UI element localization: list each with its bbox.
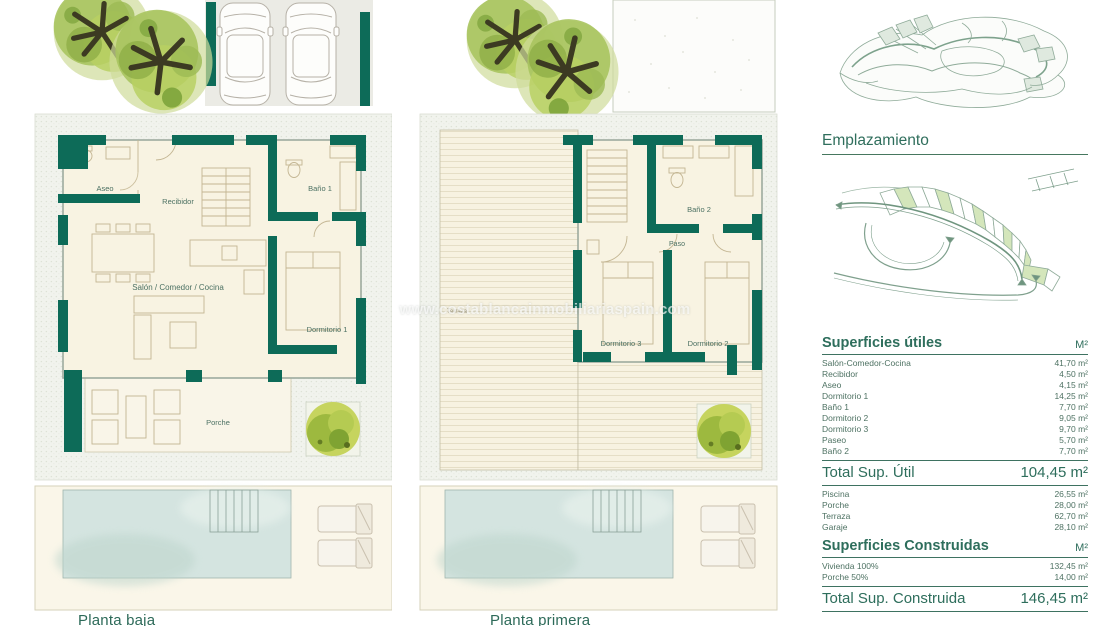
room-label-dormitorio3: Dormitorio 3 bbox=[601, 339, 642, 348]
garage bbox=[205, 0, 373, 106]
row-value: 14,00 m² bbox=[1054, 572, 1088, 583]
table-row: Baño 17,70 m² bbox=[822, 402, 1088, 413]
row-value: 9,05 m² bbox=[1059, 413, 1088, 424]
sun-lounger bbox=[701, 504, 755, 534]
gravel-patio bbox=[613, 0, 775, 112]
total-value: 104,45 m² bbox=[1020, 464, 1088, 481]
title-rule bbox=[822, 154, 1088, 155]
row-value: 9,70 m² bbox=[1059, 424, 1088, 435]
table-row: Dormitorio 39,70 m² bbox=[822, 424, 1088, 435]
total-label: Total Sup. Construida bbox=[822, 590, 965, 607]
row-label: Porche 50% bbox=[822, 572, 868, 583]
row-value: 28,10 m² bbox=[1054, 522, 1088, 533]
plan1-label: Planta baja bbox=[78, 612, 155, 626]
row-label: Baño 2 bbox=[822, 446, 849, 457]
bush-illustration bbox=[306, 402, 360, 456]
floor-plan-ground: Aseo Recibidor Baño 1 Salón / Comedor / … bbox=[30, 0, 392, 612]
row-value: 5,70 m² bbox=[1059, 435, 1088, 446]
row-label: Terraza bbox=[822, 511, 850, 522]
table-row: Dormitorio 114,25 m² bbox=[822, 391, 1088, 402]
bush-illustration bbox=[697, 404, 751, 458]
superficies-utiles-rows: Salón-Comedor-Cocina41,70 m² Recibidor4,… bbox=[822, 355, 1088, 460]
room-label-paso: Paso bbox=[669, 241, 685, 248]
sun-lounger bbox=[318, 538, 372, 568]
table-row: Baño 27,70 m² bbox=[822, 446, 1088, 457]
total-construida-row: Total Sup. Construida 146,45 m² bbox=[822, 586, 1088, 612]
row-label: Dormitorio 3 bbox=[822, 424, 868, 435]
row-value: 132,45 m² bbox=[1050, 561, 1088, 572]
section-title: Superficies útiles bbox=[822, 335, 942, 351]
row-value: 14,25 m² bbox=[1054, 391, 1088, 402]
row-value: 4,15 m² bbox=[1059, 380, 1088, 391]
table-row: Dormitorio 29,05 m² bbox=[822, 413, 1088, 424]
table-row: Salón-Comedor-Cocina41,70 m² bbox=[822, 358, 1088, 369]
table-row: Porche28,00 m² bbox=[822, 500, 1088, 511]
row-label: Piscina bbox=[822, 489, 849, 500]
terrace-deck bbox=[440, 130, 578, 470]
table-row: Piscina26,55 m² bbox=[822, 489, 1088, 500]
pool-area bbox=[420, 486, 777, 610]
row-value: 62,70 m² bbox=[1054, 511, 1088, 522]
row-label: Salón-Comedor-Cocina bbox=[822, 358, 911, 369]
row-label: Aseo bbox=[822, 380, 841, 391]
row-label: Porche bbox=[822, 500, 849, 511]
row-value: 4,50 m² bbox=[1059, 369, 1088, 380]
ground-floor-column: Aseo Recibidor Baño 1 Salón / Comedor / … bbox=[30, 0, 392, 626]
row-label: Vivienda 100% bbox=[822, 561, 879, 572]
room-label-bano1: Baño 1 bbox=[308, 184, 332, 193]
section-title: Superficies Construidas bbox=[822, 538, 989, 554]
room-label-porche: Porche bbox=[206, 418, 230, 427]
exterior-rows: Piscina26,55 m² Porche28,00 m² Terraza62… bbox=[822, 486, 1088, 536]
room-label-salon: Salón / Comedor / Cocina bbox=[132, 283, 224, 292]
row-label: Dormitorio 1 bbox=[822, 391, 868, 402]
superficies-utiles-header: Superficies útiles M² bbox=[822, 335, 1088, 355]
room-label-dormitorio2: Dormitorio 2 bbox=[688, 339, 729, 348]
table-row: Paseo5,70 m² bbox=[822, 435, 1088, 446]
watermark: www.costablancainmobiliariaspain.com bbox=[380, 301, 710, 318]
superficies-construidas-header: Superficies Construidas M² bbox=[822, 538, 1088, 558]
row-label: Paseo bbox=[822, 435, 846, 446]
row-label: Recibidor bbox=[822, 369, 858, 380]
row-value: 41,70 m² bbox=[1054, 358, 1088, 369]
room-label-aseo: Aseo bbox=[96, 184, 113, 193]
car-illustration bbox=[217, 3, 273, 105]
room-label-recibidor: Recibidor bbox=[162, 197, 194, 206]
total-label: Total Sup. Útil bbox=[822, 464, 915, 481]
sun-lounger bbox=[701, 538, 755, 568]
car-illustration bbox=[283, 3, 339, 105]
row-label: Garaje bbox=[822, 522, 848, 533]
row-label: Baño 1 bbox=[822, 402, 849, 413]
section-unit: M² bbox=[1075, 542, 1088, 554]
pool-area bbox=[35, 486, 392, 610]
row-value: 28,00 m² bbox=[1054, 500, 1088, 511]
table-row: Recibidor4,50 m² bbox=[822, 369, 1088, 380]
emplazamiento-title: Emplazamiento bbox=[822, 131, 1088, 150]
sidebar: Emplazamiento bbox=[822, 0, 1088, 612]
site-map-overview bbox=[822, 5, 1088, 119]
brochure-page: Aseo Recibidor Baño 1 Salón / Comedor / … bbox=[0, 0, 1110, 626]
row-value: 7,70 m² bbox=[1059, 446, 1088, 457]
table-row: Porche 50%14,00 m² bbox=[822, 572, 1088, 583]
sun-lounger bbox=[318, 504, 372, 534]
plan2-label: Planta primera bbox=[490, 612, 590, 626]
table-row: Vivienda 100%132,45 m² bbox=[822, 561, 1088, 572]
table-row: Garaje28,10 m² bbox=[822, 522, 1088, 533]
porch-floor bbox=[85, 378, 291, 452]
total-value: 146,45 m² bbox=[1020, 590, 1088, 607]
site-map-detail bbox=[822, 161, 1088, 321]
row-value: 7,70 m² bbox=[1059, 402, 1088, 413]
table-row: Aseo4,15 m² bbox=[822, 380, 1088, 391]
row-label: Dormitorio 2 bbox=[822, 413, 868, 424]
room-label-dormitorio1: Dormitorio 1 bbox=[307, 325, 348, 334]
total-util-row: Total Sup. Útil 104,45 m² bbox=[822, 460, 1088, 486]
table-row: Terraza62,70 m² bbox=[822, 511, 1088, 522]
section-unit: M² bbox=[1075, 339, 1088, 351]
room-label-bano2: Baño 2 bbox=[687, 205, 711, 214]
superficies-construidas-rows: Vivienda 100%132,45 m² Porche 50%14,00 m… bbox=[822, 558, 1088, 586]
row-value: 26,55 m² bbox=[1054, 489, 1088, 500]
